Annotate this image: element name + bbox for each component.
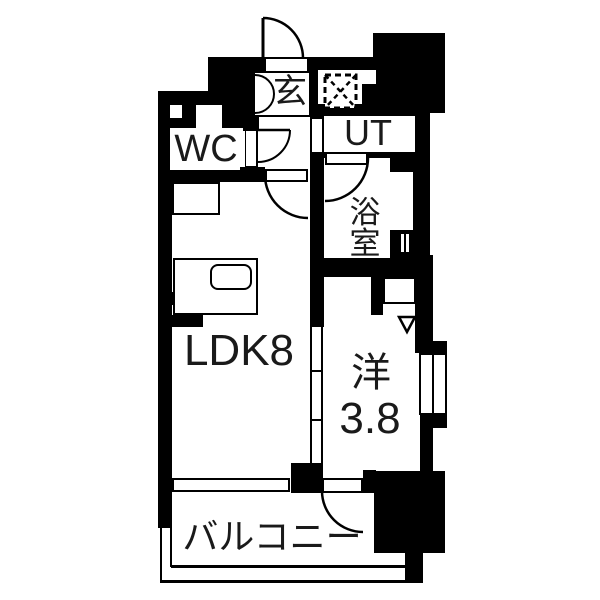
label-balcony: バルコニー [182, 519, 361, 555]
down-triangle-marker-icon [399, 317, 415, 332]
entrance-door-arc [263, 18, 303, 58]
label-ldk: LDK8 [184, 329, 294, 373]
label-ut: UT [344, 115, 392, 151]
label-western-size: 3.8 [339, 397, 400, 441]
genkan-closet-arc [255, 94, 274, 113]
label-wc: WC [174, 130, 237, 168]
floorplan: 玄 WC UT 浴室 LDK8 洋 3.8 バルコニー [0, 0, 600, 600]
genkan-closet-arc [255, 75, 274, 94]
label-genkan: 玄 [273, 75, 307, 109]
wc-door-arc [258, 130, 290, 162]
label-western-name: 洋 [351, 353, 391, 393]
label-bath: 浴室 [349, 197, 381, 259]
ldk-door-arc [265, 175, 308, 218]
